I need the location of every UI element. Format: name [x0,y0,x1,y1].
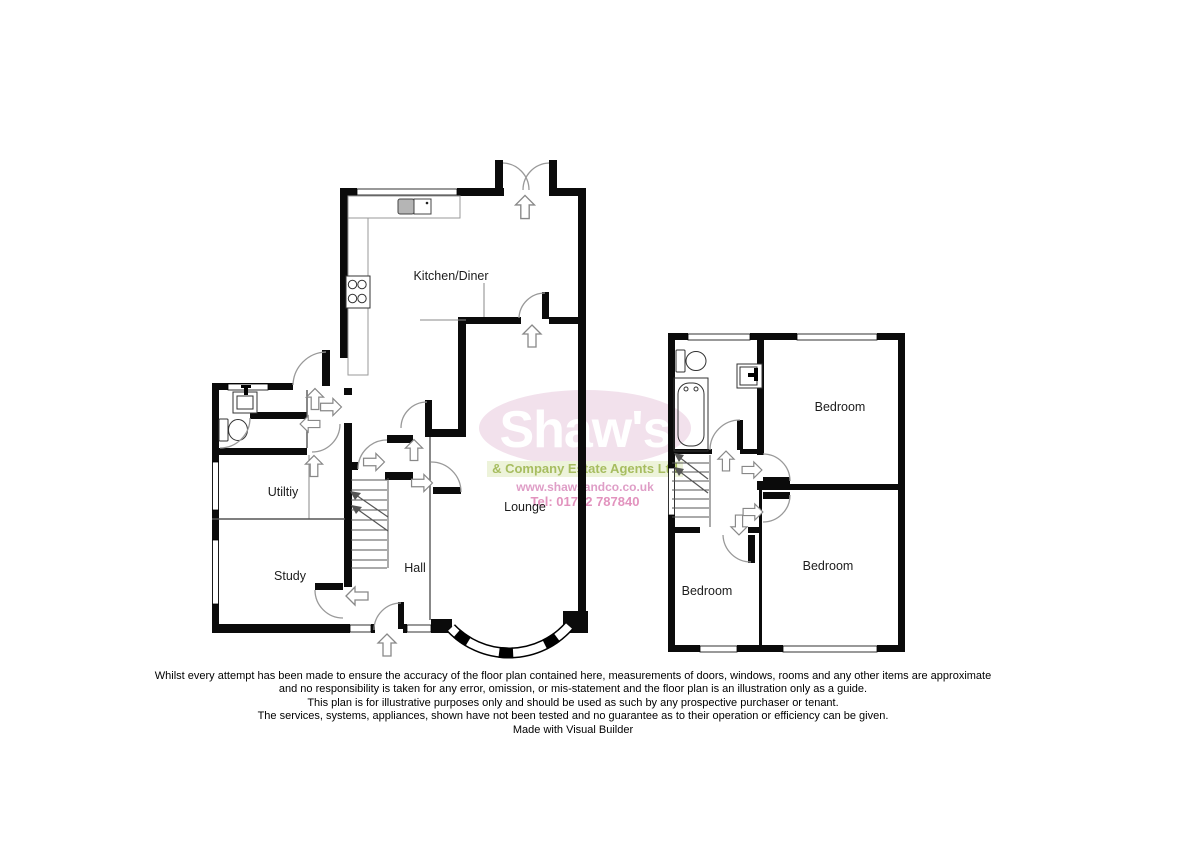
bedroom-front-door-arrow-icon [742,462,762,478]
first-floor-walls [668,333,905,652]
bathroom-bath [674,378,708,451]
bedroom-rear-label: Bedroom [803,559,854,573]
landing-down-arrow-icon [731,515,747,535]
study-label: Study [274,569,307,583]
hall-vestibule-arrow-icon [364,453,385,470]
lounge-label: Lounge [504,500,546,514]
first-floor-stairs [672,453,710,527]
bay-window [451,626,569,653]
utility-label: Utiltiy [268,485,299,499]
made-with-credit: Made with Visual Builder [0,724,1146,737]
lounge-kitchen-door-arrow-icon [523,325,541,347]
kitchen-diner-label: Kitchen/Diner [413,269,488,283]
disclaimer-block: Whilst every attempt has been made to en… [0,670,1146,737]
utility-door-arrow-icon [305,456,322,477]
disclaimer-line: Whilst every attempt has been made to en… [0,670,1146,683]
hall-label: Hall [404,561,426,575]
lobby-right-arrow-icon [321,398,342,415]
bedroom-front-label: Bedroom [815,400,866,414]
french-door-arrow-icon [516,195,535,218]
bathroom-toilet [676,350,706,372]
ground-floor-stairs [350,478,388,568]
bathroom-door-arrow-icon [718,451,734,471]
floorplan-page: Shaw's & Company Estate Agents Ltd www.s… [0,0,1200,849]
front-door-arrow-icon [378,634,396,656]
bathroom-basin [737,364,762,388]
ground-floor-plan: Kitchen/Diner Utiltiy Study Hall Lounge [212,160,588,656]
ground-floor-walls [212,160,588,633]
study-door-arrow-icon [346,587,368,605]
disclaimer-line: and no responsibility is taken for any e… [0,683,1146,696]
bedroom-small-label: Bedroom [682,584,733,598]
first-floor-plan: Bedroom Bedroom Bedroom [668,333,905,652]
kitchen-sink [398,199,431,214]
disclaimer-line: The services, systems, appliances, shown… [0,710,1146,723]
kitchen-hob [346,276,370,308]
first-floor-door-arrows [718,451,763,535]
disclaimer-line: This plan is for illustrative purposes o… [0,697,1146,710]
